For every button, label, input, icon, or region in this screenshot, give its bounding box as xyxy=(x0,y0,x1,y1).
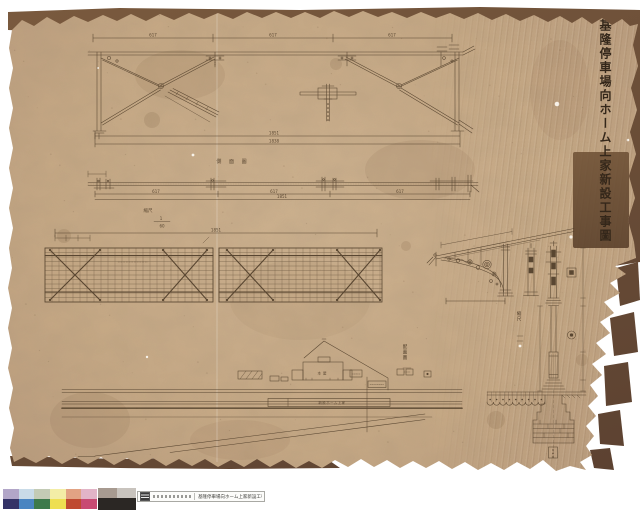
label-title: 基隆停車場向ホーム上家新設工事圖 xyxy=(198,494,262,500)
svg-text:617: 617 xyxy=(270,189,278,194)
drawing-title: 基隆停車場向ホーム上家新設工事圖 xyxy=(597,19,614,257)
color-swatch xyxy=(34,499,50,509)
svg-text:617: 617 xyxy=(152,189,160,194)
scanned-drawing-sheet: 617 617 617 xyxy=(0,0,640,514)
color-swatch xyxy=(3,489,19,499)
svg-text:本屋: 本屋 xyxy=(318,371,329,376)
svg-text:新設ホーム上家: 新設ホーム上家 xyxy=(318,400,345,405)
svg-text:60: 60 xyxy=(159,224,165,229)
column-elevation-drawing xyxy=(487,241,586,460)
color-swatch xyxy=(98,488,117,498)
archive-label: 基隆停車場向ホーム上家新設工事圖 xyxy=(137,491,265,502)
svg-text:1: 1 xyxy=(160,216,163,221)
site-plan-title: 配置圖 xyxy=(401,344,407,361)
color-bar-bottom-row xyxy=(3,499,97,509)
label-divider xyxy=(194,493,195,500)
color-swatch xyxy=(50,499,66,509)
truss-elevation-drawing: 617 617 617 xyxy=(88,33,475,148)
svg-text:側 面 圖: 側 面 圖 xyxy=(216,158,249,165)
valance-frieze-detail-drawing xyxy=(487,392,545,405)
color-swatch xyxy=(66,489,82,499)
svg-text:1851: 1851 xyxy=(277,194,288,199)
color-swatch xyxy=(81,499,97,509)
document-icon xyxy=(140,492,150,501)
color-swatch xyxy=(117,488,136,498)
paper-sheet: 617 617 617 xyxy=(0,0,640,514)
svg-text:617: 617 xyxy=(396,189,404,194)
color-swatch xyxy=(34,489,50,499)
color-swatch xyxy=(19,489,35,499)
svg-text:1851: 1851 xyxy=(211,228,222,233)
svg-text:1838: 1838 xyxy=(269,139,280,144)
color-calibration-bar xyxy=(3,489,97,509)
svg-text:1851: 1851 xyxy=(269,131,280,136)
ink-drawings: 617 617 617 xyxy=(0,0,640,514)
svg-text:617: 617 xyxy=(269,33,277,38)
svg-text:617: 617 xyxy=(388,33,396,38)
grayscale-patch xyxy=(98,488,136,510)
detail-scale-note: 縮尺 xyxy=(515,311,521,322)
svg-text:縮尺: 縮尺 xyxy=(144,207,153,214)
svg-text:617: 617 xyxy=(149,33,157,38)
color-swatch xyxy=(19,499,35,509)
color-swatch xyxy=(81,489,97,499)
label-code xyxy=(153,495,191,498)
color-swatch xyxy=(66,499,82,509)
color-swatch xyxy=(3,499,19,509)
color-bar-top-row xyxy=(3,489,97,499)
post-detail-drawing xyxy=(524,244,539,297)
gray-patch-dark xyxy=(98,498,136,510)
roof-framing-plan-drawing: 1851 xyxy=(45,228,382,303)
color-swatch xyxy=(50,489,66,499)
beam-side-view-drawing: 側 面 圖 617 617 617 1851 縮尺 1 xyxy=(88,158,479,229)
gray-patch-top-row xyxy=(98,488,136,498)
